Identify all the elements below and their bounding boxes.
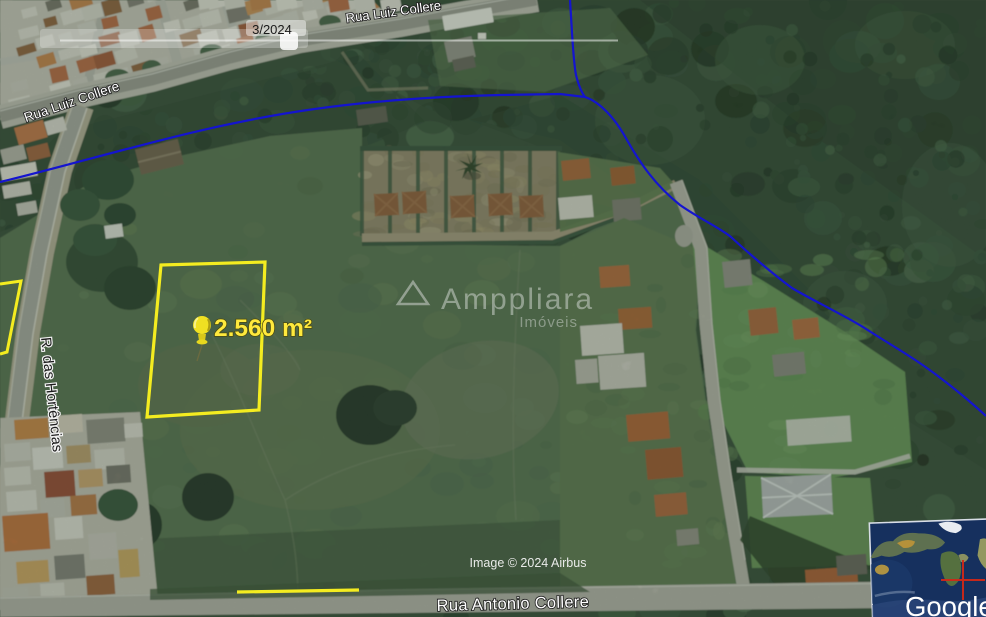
svg-text:Google: Google xyxy=(905,591,986,617)
svg-text:3/2024: 3/2024 xyxy=(252,22,292,37)
svg-text:Image © 2024 Airbus: Image © 2024 Airbus xyxy=(470,556,587,570)
svg-text:Imóveis: Imóveis xyxy=(519,314,578,331)
svg-text:Amppliara: Amppliara xyxy=(441,283,594,316)
svg-text:2.560 m²: 2.560 m² xyxy=(214,315,312,342)
